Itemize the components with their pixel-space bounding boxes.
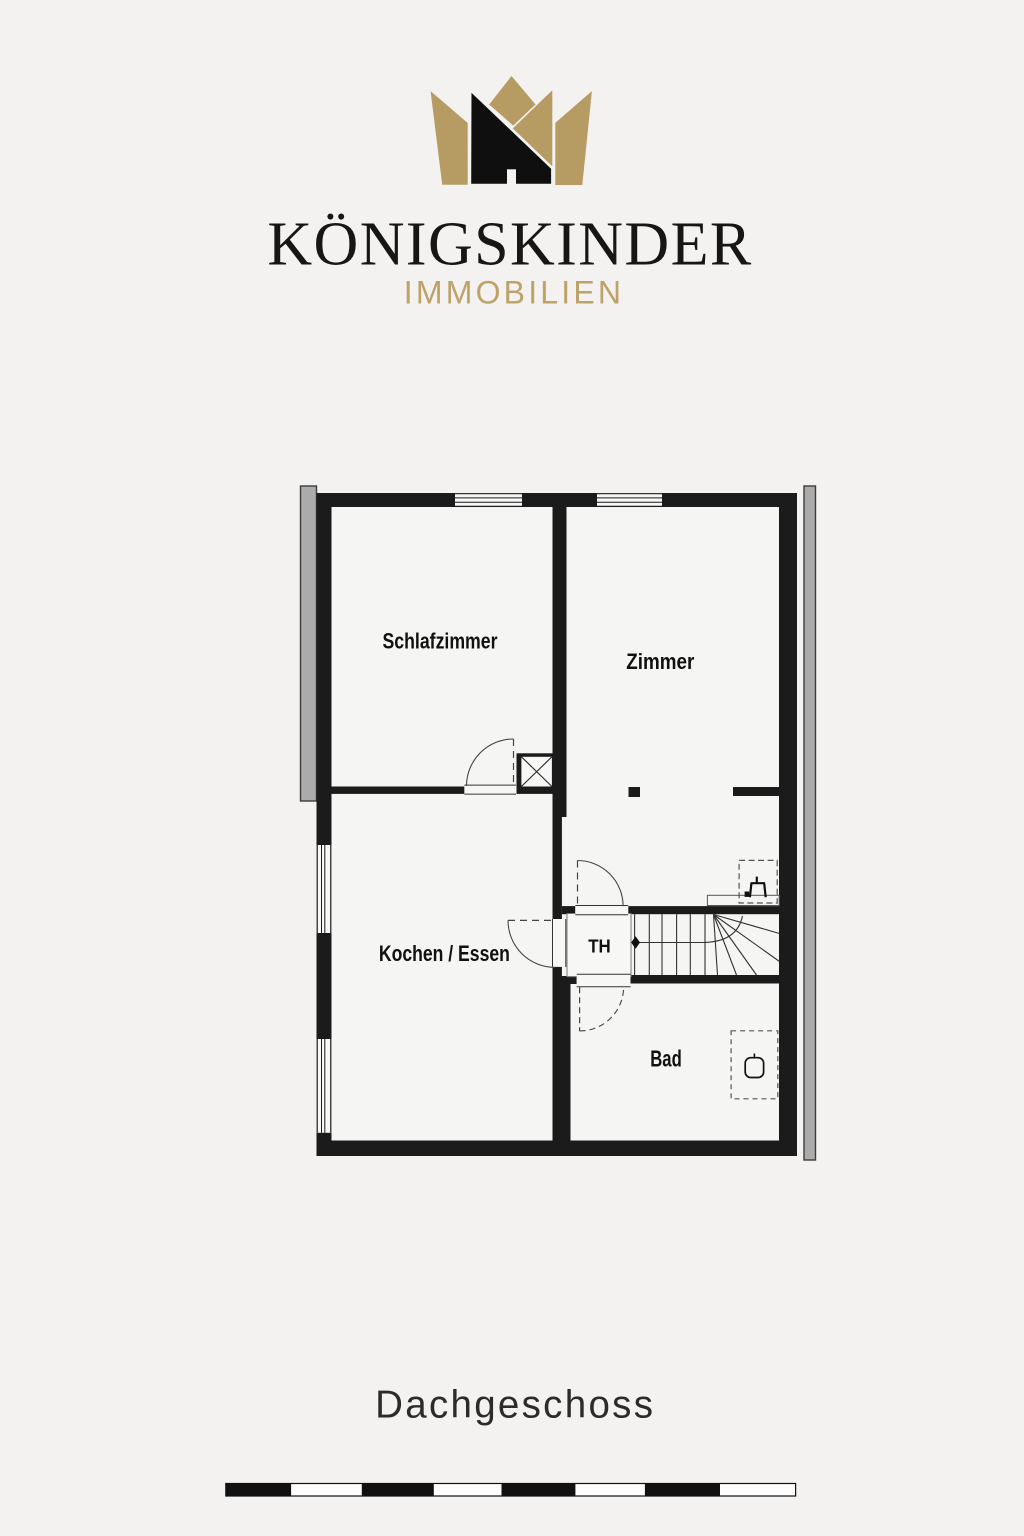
svg-text:KÖNIGSKINDER: KÖNIGSKINDER [267,211,752,279]
svg-text:Bad: Bad [650,1046,682,1072]
svg-text:Kochen / Essen: Kochen / Essen [379,941,510,966]
svg-text:Schlafzimmer: Schlafzimmer [383,628,498,653]
svg-text:IMMOBILIEN: IMMOBILIEN [404,275,624,311]
svg-text:Zimmer: Zimmer [626,649,694,674]
svg-text:TH: TH [588,937,611,957]
svg-text:Dachgeschoss: Dachgeschoss [375,1384,655,1427]
